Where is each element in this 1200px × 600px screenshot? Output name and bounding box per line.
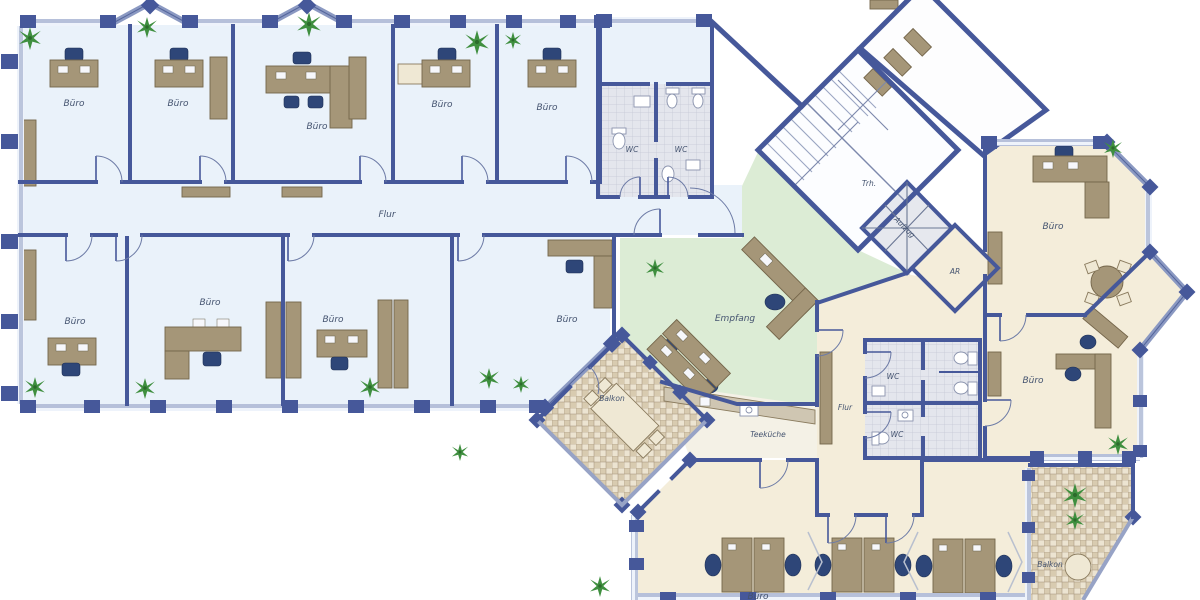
room-label-buero: Büro (536, 103, 558, 113)
room-label-buero: Büro (167, 99, 189, 109)
room-label-wc: WC (887, 372, 900, 381)
room-label-buero: Büro (556, 315, 578, 325)
room-label-flur: Flur (378, 210, 396, 220)
room-label-buero: Büro (1042, 222, 1064, 232)
corridor-wardrobe (820, 352, 832, 444)
floor-plan-page: Büro Büro Büro Büro Büro Büro Büro Büro … (0, 0, 1200, 600)
room-label-teekueche: Teeküche (750, 430, 786, 439)
room-label-wc: WC (891, 430, 904, 439)
room-label-buero: Büro (1022, 376, 1044, 386)
room-label-wc: WC (626, 145, 639, 154)
room-label-buero: Büro (63, 99, 85, 109)
north-core-anteroom-floor (598, 20, 712, 84)
room-label-buero: Büro (64, 317, 86, 327)
room-label-ar: AR (949, 267, 960, 276)
balcony-round-table (1065, 554, 1091, 580)
plant-icon (452, 444, 468, 461)
floor-plan-drawing: Büro Büro Büro Büro Büro Büro Büro Büro … (0, 0, 1200, 600)
room-label-trh: Trh. (862, 179, 876, 188)
room-label-buero: Büro (747, 592, 769, 600)
corridor-sideboard (282, 187, 322, 197)
envelope-wall (712, 22, 802, 106)
room-label-empfang: Empfang (715, 314, 756, 324)
reception-chair (765, 294, 785, 310)
room-label-buero: Büro (306, 122, 328, 132)
room-label-flur: Flur (838, 403, 853, 412)
plant-icon (590, 576, 610, 597)
corridor-sideboard (182, 187, 230, 197)
room-label-wc: WC (675, 145, 688, 154)
room-label-balkon: Balkon (599, 394, 625, 403)
room-label-buero: Büro (199, 298, 221, 308)
room-label-buero: Büro (322, 315, 344, 325)
room-label-balkon: Balkon (1037, 560, 1063, 569)
room-label-buero: Büro (431, 100, 453, 110)
